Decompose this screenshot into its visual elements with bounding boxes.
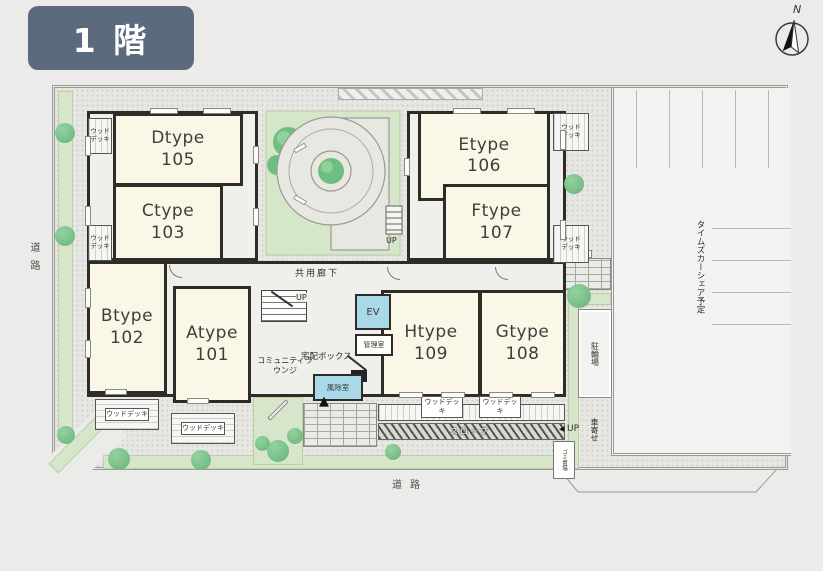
- unit-type: Dtype: [151, 128, 205, 149]
- courtyard-stairs-up-label: UP: [386, 236, 397, 245]
- room-ftype[interactable]: Ftype 107: [443, 184, 550, 261]
- room-gtype[interactable]: Gtype 108: [479, 290, 566, 397]
- elevator: EV: [355, 294, 391, 330]
- unit-number: 102: [110, 328, 144, 349]
- wood-deck-label: ウッドデッキ: [105, 408, 149, 421]
- window: [150, 108, 178, 114]
- garbage-area: ゴミ置場: [553, 441, 575, 479]
- wood-deck-h: ウッドデッキ: [421, 396, 463, 418]
- wood-deck-a: ウッドデッキ: [171, 413, 235, 444]
- courtyard-garden-icon: [258, 108, 407, 261]
- window: [203, 108, 231, 114]
- tree-icon: [55, 226, 75, 246]
- wood-deck-d: ウッドデッキ: [88, 118, 112, 154]
- tree-icon: [564, 174, 584, 194]
- windbreak-room-label: 風除室: [327, 382, 350, 393]
- interior-stairs-up-label: UP: [296, 293, 307, 302]
- unit-type: Atype: [186, 323, 238, 344]
- parking-stall-line: [712, 260, 791, 261]
- unit-type: Htype: [404, 322, 457, 343]
- window: [253, 146, 259, 164]
- courtyard: [258, 108, 407, 261]
- garbage-area-label: ゴミ置場: [560, 449, 568, 471]
- unit-number: 106: [467, 156, 501, 177]
- elevator-label: EV: [366, 307, 379, 318]
- wood-deck-b: ウッドデッキ: [95, 399, 159, 430]
- unit-type: Ctype: [142, 201, 194, 222]
- unit-number: 108: [506, 344, 540, 365]
- window: [531, 392, 555, 398]
- wood-deck-f: ウッドデッキ: [553, 225, 589, 263]
- wood-deck-label: ウッドデッキ: [90, 235, 110, 251]
- tree-icon: [57, 426, 75, 444]
- entrance-steps: [303, 403, 377, 447]
- tree-icon: [567, 284, 591, 308]
- window: [85, 288, 91, 308]
- parking-stall-line: [712, 228, 791, 229]
- floorplan-page: { "floor_badge": { "label": "1 階" }, "co…: [0, 0, 823, 571]
- unit-number: 105: [161, 150, 195, 171]
- terrace-band: [378, 404, 565, 421]
- wood-deck-label: ウッドデッキ: [181, 422, 225, 435]
- window: [441, 392, 465, 398]
- window: [560, 220, 566, 240]
- window: [85, 136, 91, 156]
- window: [85, 340, 91, 358]
- unit-number: 109: [414, 344, 448, 365]
- bicycle-parking: 駐輪場: [578, 309, 612, 398]
- wood-deck-e: ウッドデッキ: [553, 113, 589, 151]
- window: [105, 389, 127, 395]
- wood-deck-label: ウッドデッキ: [90, 128, 110, 144]
- tree-icon: [287, 428, 303, 444]
- parking-stall-line: [702, 90, 703, 168]
- bicycle-parking-label: 駐輪場: [590, 342, 601, 366]
- wood-deck-c: ウッドデッキ: [88, 225, 112, 261]
- entrance-arrow-icon: ▲: [319, 394, 329, 409]
- parking-stall-line: [669, 90, 670, 168]
- slope-up-arrow-icon: ◀: [559, 425, 564, 433]
- room-dtype[interactable]: Dtype 105: [113, 113, 243, 186]
- parking-stall-line: [712, 324, 791, 325]
- planting-strip-left: [58, 91, 73, 439]
- tree-icon: [385, 444, 401, 460]
- unit-number: 103: [151, 223, 185, 244]
- manager-room-label: 管理室: [364, 340, 385, 350]
- tree-icon: [55, 123, 75, 143]
- carshare-label: タイムズカーシェア予定: [694, 220, 706, 314]
- manager-room: 管理室: [355, 334, 393, 356]
- site-plan: UP Dtype 105 Ctype 103 Etype 106 Ftype 1…: [52, 85, 788, 470]
- unit-type: Etype: [458, 135, 509, 156]
- community-lounge-label: コミュニティラウンジ: [257, 356, 313, 377]
- window: [253, 208, 259, 226]
- window: [404, 158, 410, 176]
- window: [560, 130, 566, 150]
- planting-strip-bottom: [103, 455, 563, 469]
- window: [453, 108, 481, 114]
- unit-type: Gtype: [496, 322, 550, 343]
- parking-stall-line: [712, 292, 791, 293]
- window: [85, 206, 91, 226]
- unit-number: 107: [480, 223, 514, 244]
- unit-number: 101: [195, 345, 229, 366]
- slope-label: スロープ: [450, 426, 490, 437]
- window: [399, 392, 423, 398]
- parking-stall-line: [735, 90, 736, 168]
- wood-deck-g: ウッドデッキ: [479, 396, 521, 418]
- room-atype[interactable]: Atype 101: [173, 286, 251, 403]
- room-ctype[interactable]: Ctype 103: [113, 184, 223, 261]
- parking-stall-line: [636, 90, 637, 168]
- common-corridor-label: 共用廊下: [295, 266, 339, 279]
- tree-icon: [267, 440, 289, 462]
- car-porch-label: 車寄せ: [589, 418, 600, 442]
- parking-stall-line: [768, 90, 769, 168]
- top-fence: [338, 88, 483, 100]
- window: [489, 392, 513, 398]
- unit-type: Ftype: [471, 201, 521, 222]
- parking-lot: タイムズカーシェア予定: [611, 88, 791, 456]
- tree-icon: [191, 450, 211, 470]
- slope-up-label: UP: [567, 424, 579, 434]
- window: [507, 108, 535, 114]
- tree-icon: [108, 448, 130, 470]
- room-btype[interactable]: Btype 102: [87, 261, 167, 394]
- window: [187, 398, 209, 404]
- unit-type: Btype: [101, 306, 153, 327]
- room-htype[interactable]: Htype 109: [381, 290, 481, 397]
